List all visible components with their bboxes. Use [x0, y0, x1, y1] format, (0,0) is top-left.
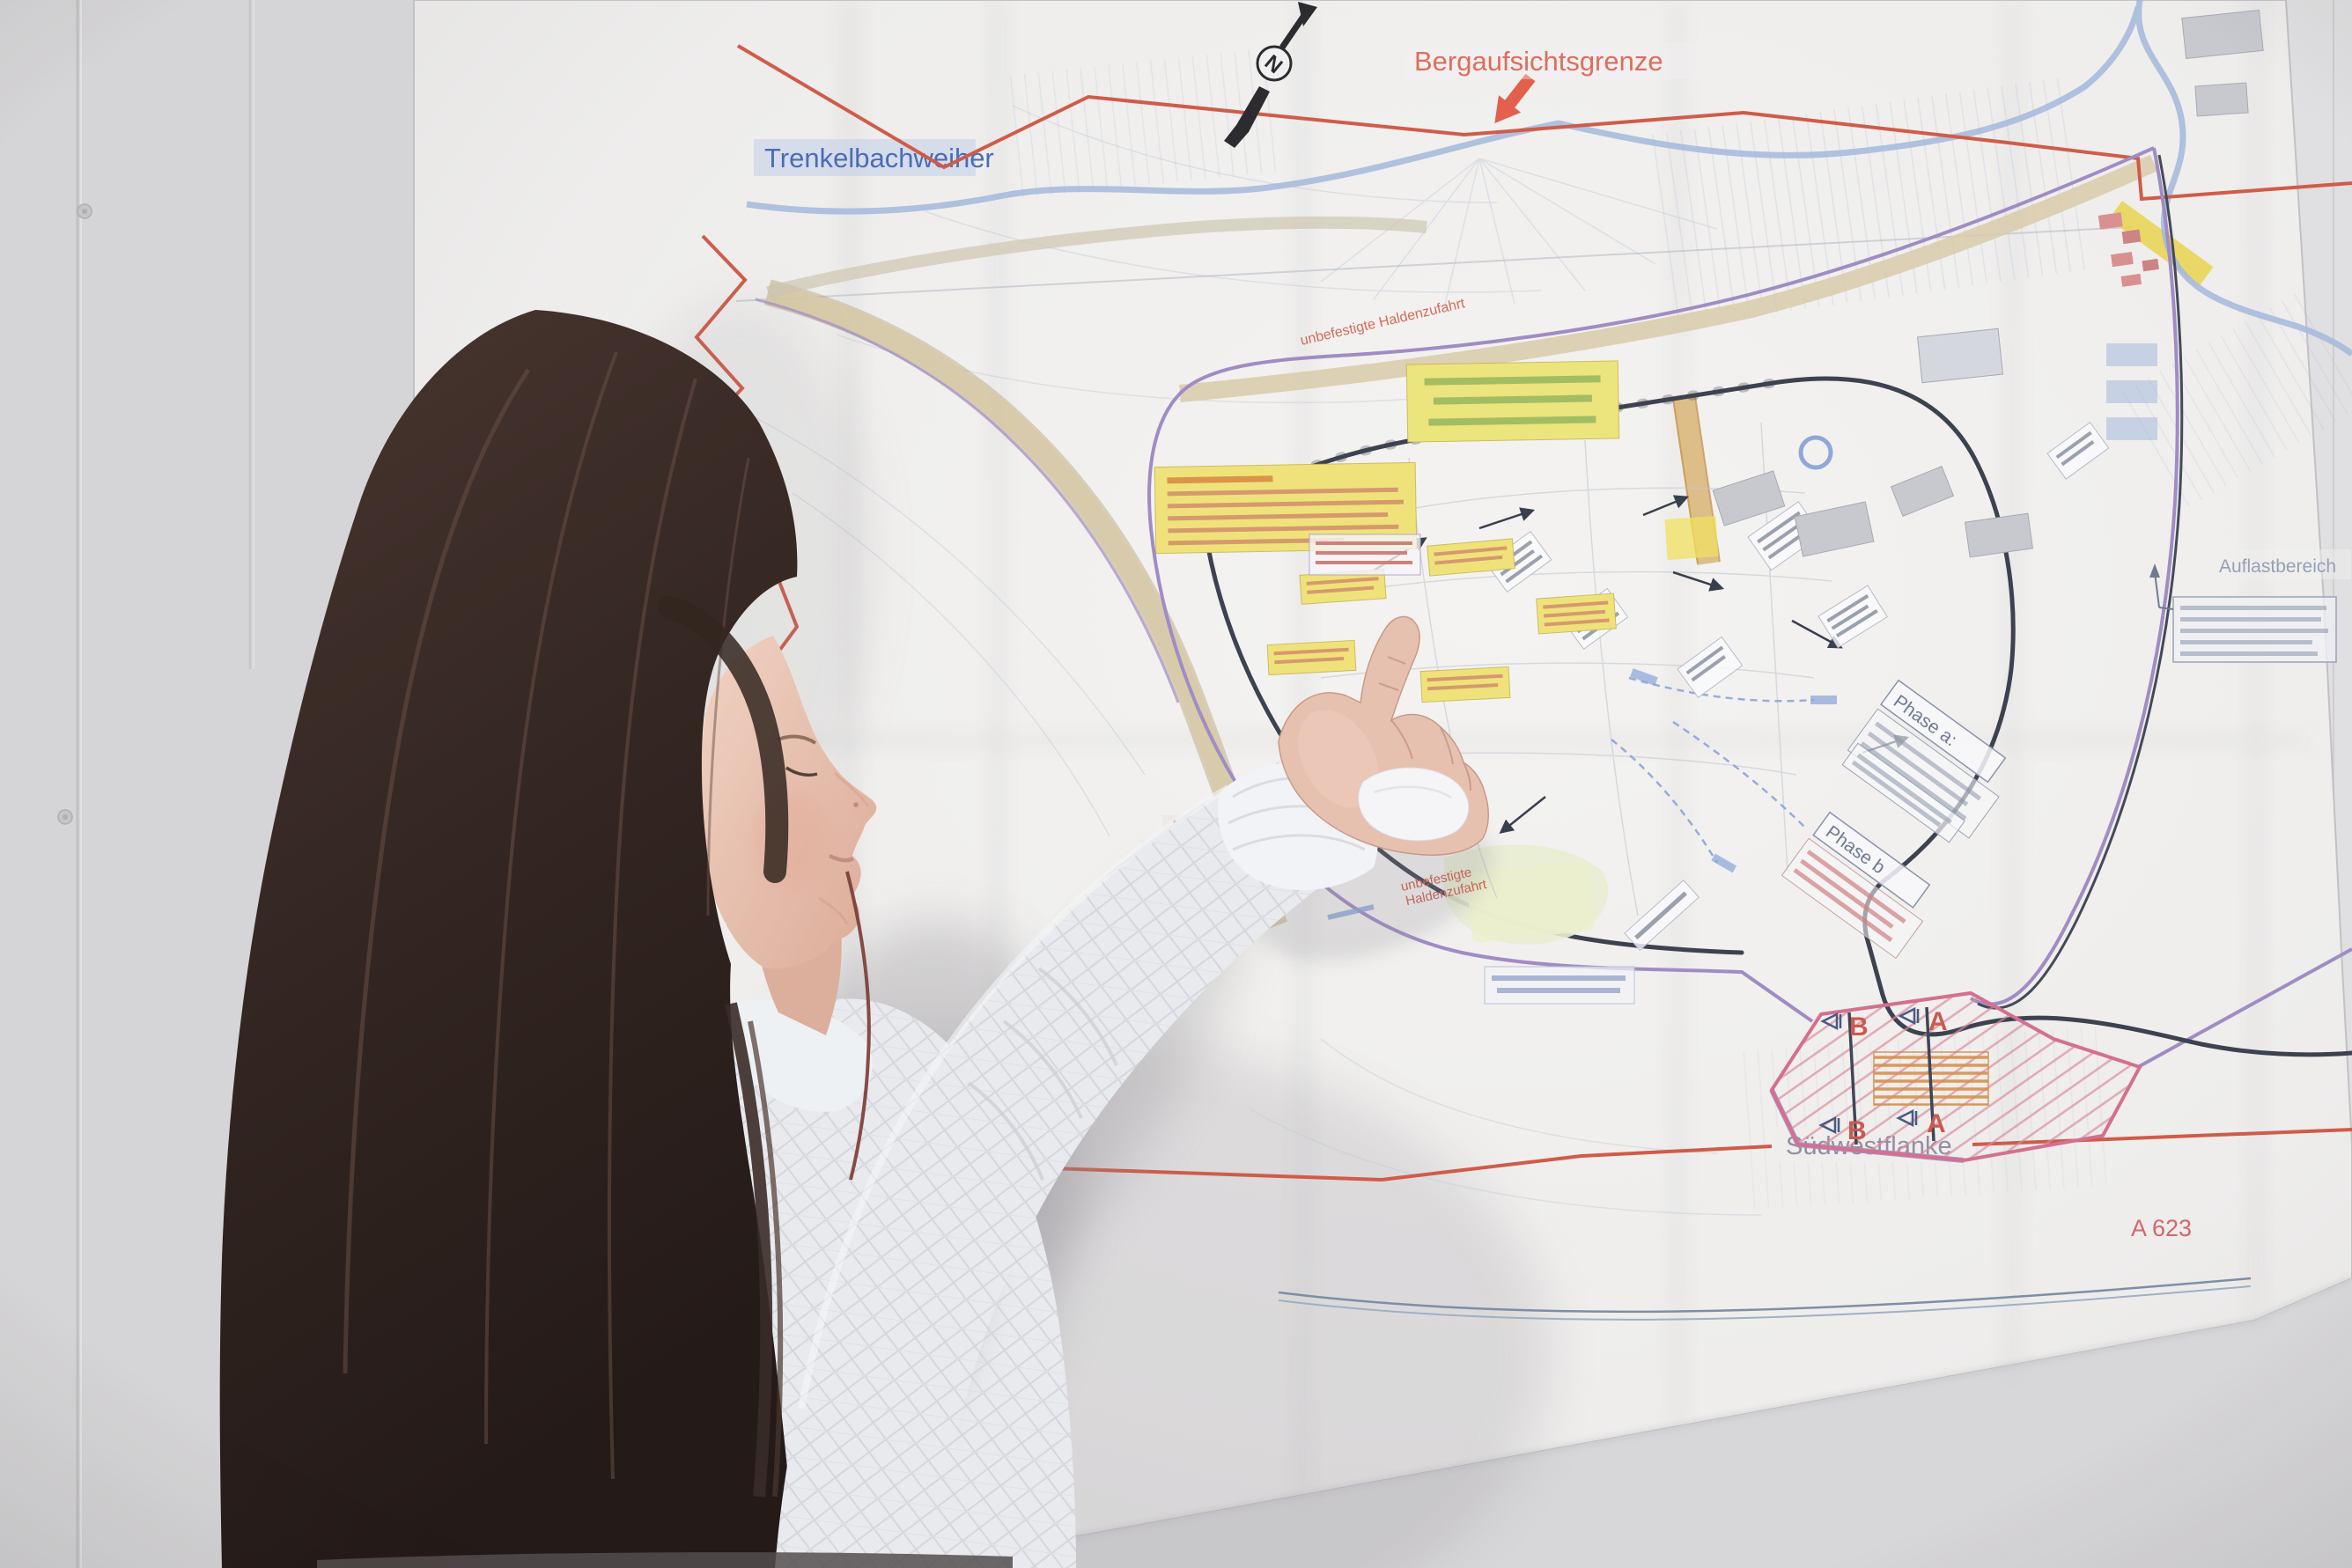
vignette	[0, 0, 2352, 1568]
photo-scene: Trenkelbachweiher Bergaufsichtsgrenze Sü…	[0, 0, 2352, 1568]
photo-canvas: Trenkelbachweiher Bergaufsichtsgrenze Sü…	[0, 0, 2352, 1568]
